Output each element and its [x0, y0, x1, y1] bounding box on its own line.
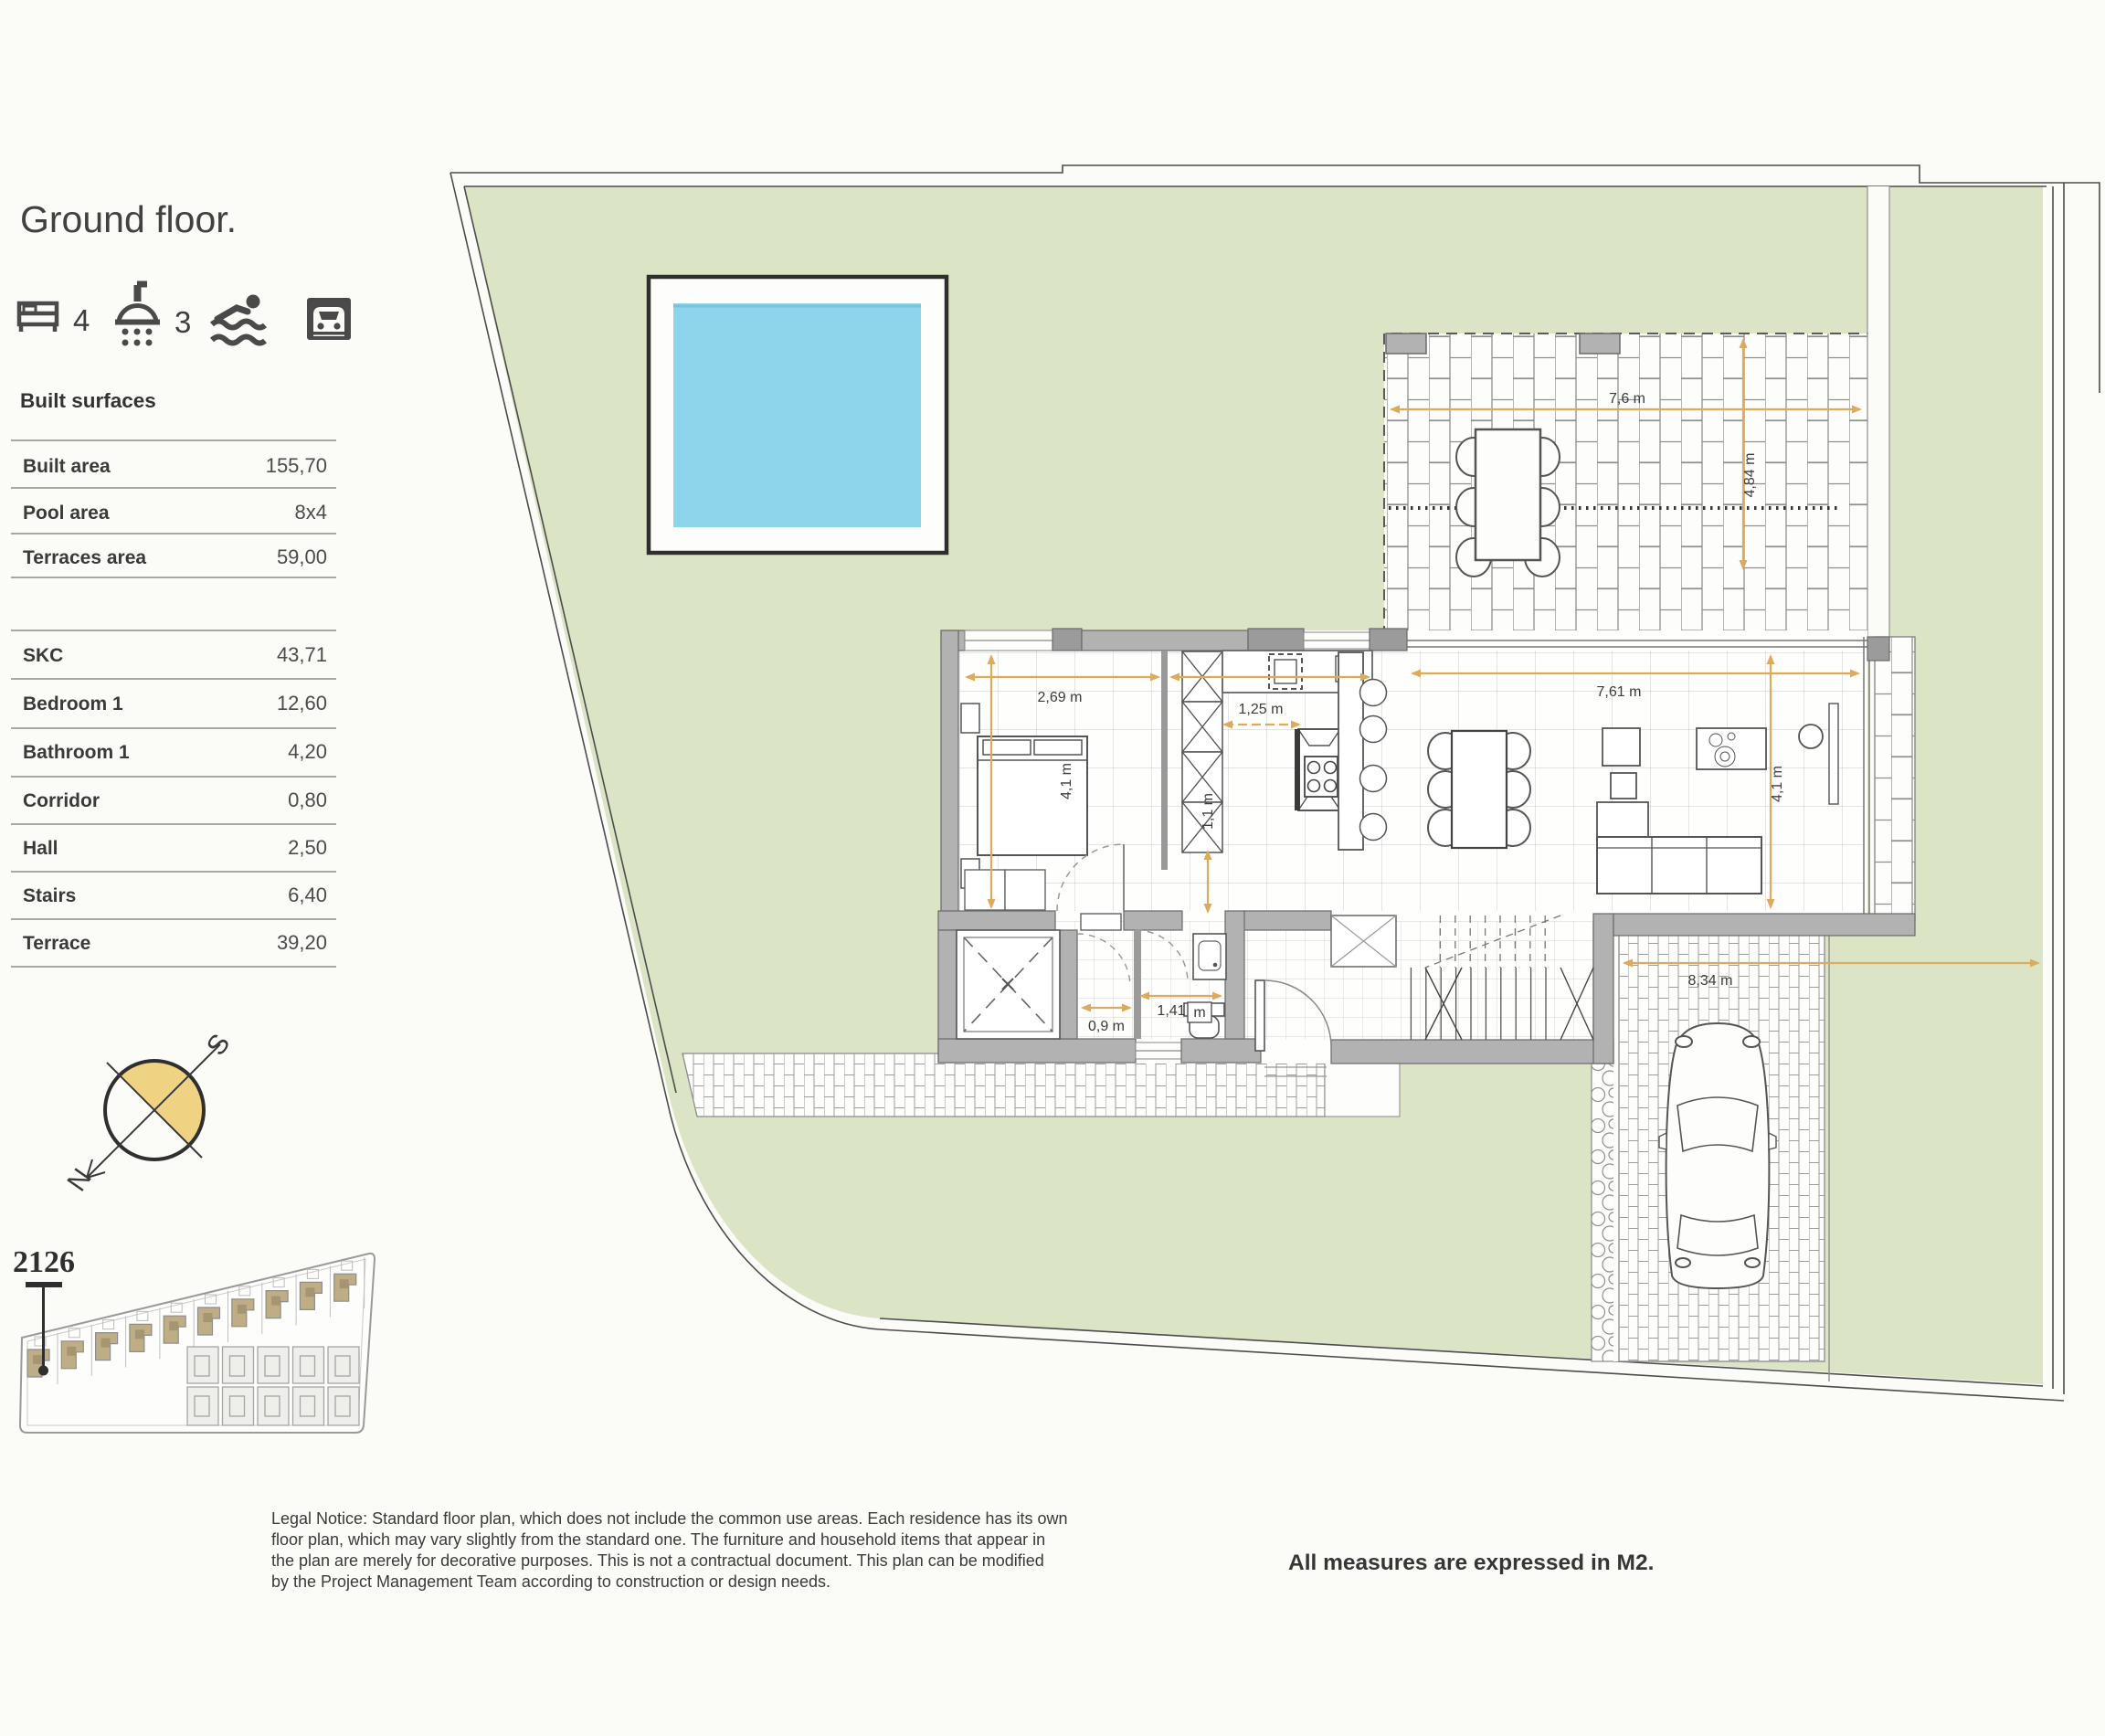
svg-text:Ground floor.: Ground floor. [20, 198, 237, 240]
svg-text:SKC: SKC [23, 645, 63, 666]
svg-text:2,50: 2,50 [288, 836, 327, 859]
svg-text:8x4: 8x4 [295, 501, 327, 524]
svg-text:4,1 m: 4,1 m [1059, 763, 1074, 799]
svg-text:4,20: 4,20 [288, 740, 327, 763]
svg-text:0,80: 0,80 [288, 789, 327, 811]
svg-text:155,70: 155,70 [266, 454, 327, 477]
svg-text:m: m [1193, 1005, 1205, 1021]
svg-text:7,6 m: 7,6 m [1609, 391, 1645, 407]
svg-text:4,84 m: 4,84 m [1742, 453, 1758, 498]
svg-text:Stairs: Stairs [23, 885, 76, 906]
svg-text:Built area: Built area [23, 456, 111, 477]
svg-text:Terrace: Terrace [23, 933, 90, 954]
svg-text:1,41: 1,41 [1157, 1003, 1185, 1019]
svg-text:39,20: 39,20 [277, 931, 327, 954]
svg-text:43,71: 43,71 [277, 643, 327, 666]
svg-text:Legal Notice: Standard floor p: Legal Notice: Standard floor plan, which… [271, 1509, 1068, 1528]
svg-text:All measures are expressed in: All measures are expressed in M2. [1288, 1551, 1654, 1575]
svg-text:floor plan, which may vary sli: floor plan, which may vary slightly from… [271, 1530, 1045, 1549]
svg-text:by the Project Management Team: by the Project Management Team according… [271, 1572, 830, 1591]
svg-text:7,61 m: 7,61 m [1597, 684, 1642, 700]
svg-text:4: 4 [73, 303, 90, 337]
svg-text:3: 3 [175, 305, 191, 339]
svg-text:4,1 m: 4,1 m [1770, 766, 1785, 802]
svg-text:2126: 2126 [13, 1245, 75, 1279]
svg-text:1,1 m: 1,1 m [1201, 793, 1216, 830]
svg-text:Hall: Hall [23, 838, 58, 859]
svg-text:12,60: 12,60 [277, 692, 327, 715]
svg-text:2,69 m: 2,69 m [1038, 690, 1083, 705]
svg-text:Corridor: Corridor [23, 790, 100, 811]
svg-text:Pool area: Pool area [23, 503, 110, 524]
svg-text:8,34 m: 8,34 m [1688, 973, 1733, 989]
svg-text:Terraces area: Terraces area [23, 547, 146, 568]
svg-text:0,9 m: 0,9 m [1088, 1019, 1125, 1034]
svg-text:59,00: 59,00 [277, 545, 327, 568]
svg-text:6,40: 6,40 [288, 884, 327, 906]
svg-text:Bedroom 1: Bedroom 1 [23, 693, 123, 715]
svg-text:Built surfaces: Built surfaces [20, 389, 156, 412]
svg-text:Bathroom 1: Bathroom 1 [23, 742, 130, 763]
svg-text:1,25 m: 1,25 m [1239, 702, 1284, 717]
svg-text:the plan are merely for decora: the plan are merely for decorative purpo… [271, 1551, 1044, 1570]
